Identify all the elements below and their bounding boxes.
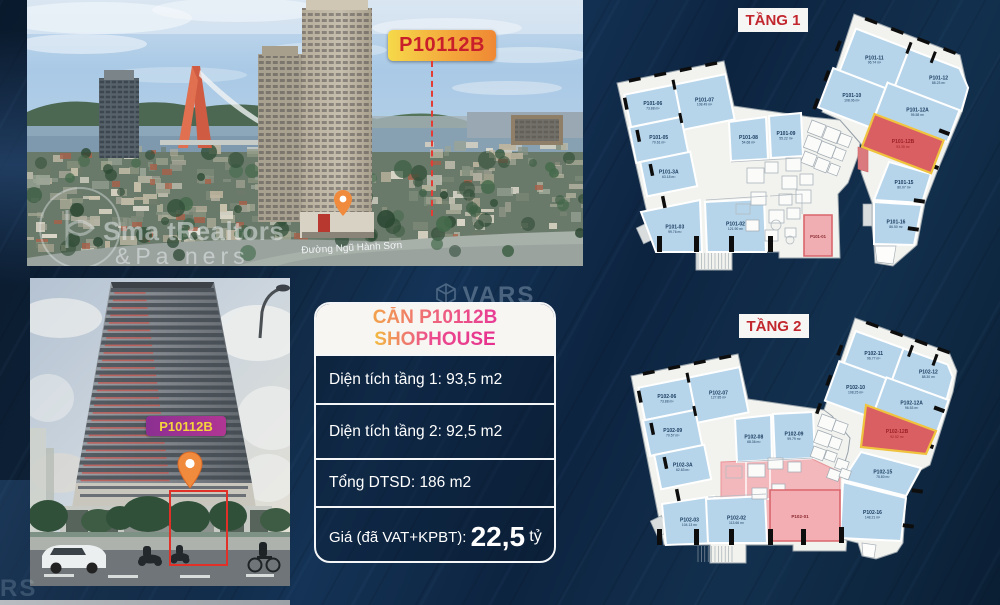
svg-text:108.49 m²: 108.49 m²: [697, 103, 713, 107]
svg-text:99.79 m²: 99.79 m²: [787, 437, 801, 441]
svg-text:108.06 m²: 108.06 m²: [844, 99, 860, 103]
svg-text:70.61 m²: 70.61 m²: [652, 141, 666, 145]
svg-text:80.07 m²: 80.07 m²: [897, 186, 911, 190]
svg-text:121.90 m²: 121.90 m²: [728, 227, 744, 231]
svg-text:&Pa ners: &Pa ners: [115, 243, 250, 266]
svg-text:62.63 m²: 62.63 m²: [676, 468, 690, 472]
svg-text:P101-01: P101-01: [810, 234, 827, 239]
svg-text:88.30 m²: 88.30 m²: [922, 375, 936, 379]
svg-text:96.74 m²: 96.74 m²: [868, 61, 882, 65]
svg-text:95.58 m²: 95.58 m²: [911, 113, 925, 117]
svg-text:92.52 m²: 92.52 m²: [890, 435, 904, 439]
svg-text:104.13 m²: 104.13 m²: [682, 523, 698, 527]
svg-text:148.21 m²: 148.21 m²: [865, 516, 881, 520]
svg-text:99.76 m²: 99.76 m²: [668, 230, 682, 234]
svg-text:113.66 m²: 113.66 m²: [729, 521, 745, 525]
svg-text:88.23 m²: 88.23 m²: [932, 81, 946, 85]
svg-text:75.80 m²: 75.80 m²: [876, 475, 890, 479]
svg-text:Sma tRealtors: Sma tRealtors: [103, 216, 284, 246]
svg-text:63.18 m²: 63.18 m²: [662, 175, 676, 179]
svg-text:73.88 m²: 73.88 m²: [660, 400, 674, 404]
svg-text:55.22 m²: 55.22 m²: [779, 137, 793, 141]
svg-text:68.36 m²: 68.36 m²: [747, 440, 761, 444]
svg-text:70.57 m²: 70.57 m²: [666, 434, 680, 438]
svg-text:93.35 m²: 93.35 m²: [896, 145, 910, 149]
svg-text:86.50 m²: 86.50 m²: [889, 225, 903, 229]
svg-text:96.53 m²: 96.53 m²: [905, 406, 919, 410]
svg-text:73.88 m²: 73.88 m²: [646, 107, 660, 111]
svg-text:P102-01: P102-01: [791, 514, 809, 519]
svg-text:54.68 m²: 54.68 m²: [742, 141, 756, 145]
svg-text:127.85 m²: 127.85 m²: [711, 396, 727, 400]
svg-text:96.77 m²: 96.77 m²: [867, 357, 881, 361]
svg-text:108.25 m²: 108.25 m²: [848, 390, 864, 394]
